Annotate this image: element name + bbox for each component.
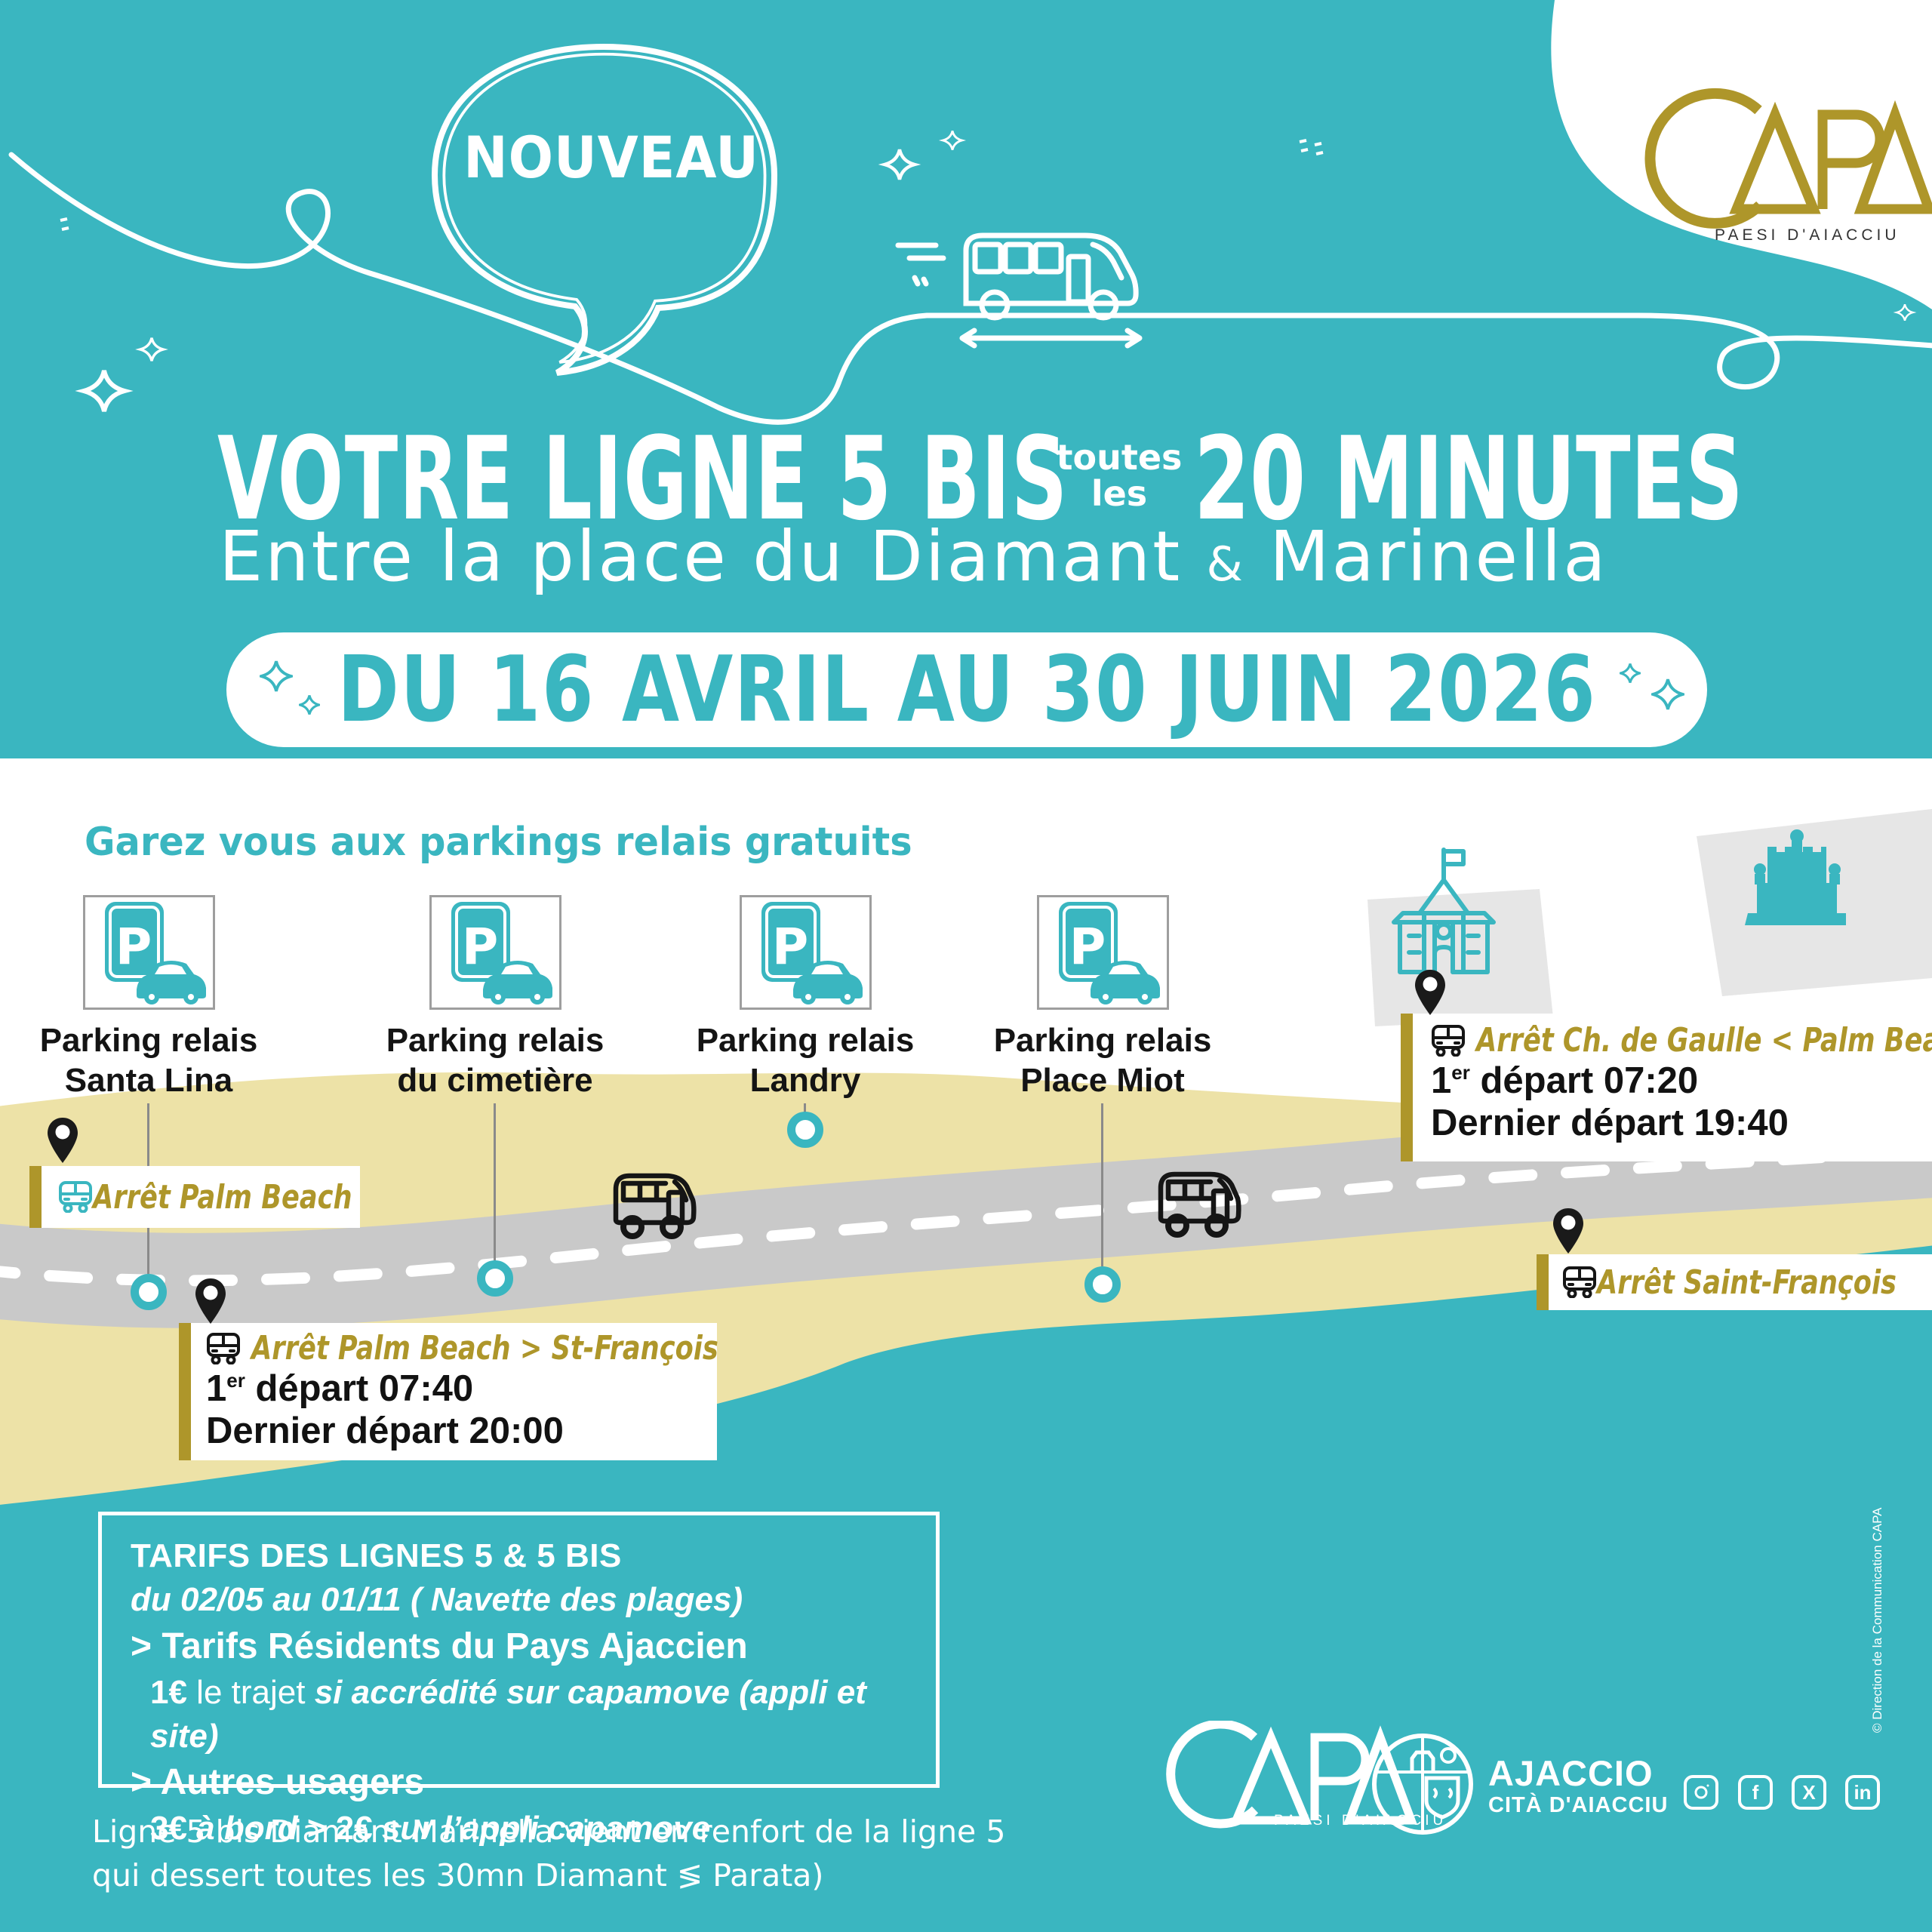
parking-icon: P: [85, 897, 213, 1008]
map-pin-icon: [47, 1117, 78, 1164]
instagram-icon[interactable]: [1684, 1775, 1718, 1810]
first-departure: 1er départ 07:20: [1431, 1060, 1932, 1102]
tarifs-resident-header: > Tarifs Résidents du Pays Ajaccien: [131, 1623, 936, 1671]
city-name: AJACCIO: [1488, 1752, 1654, 1794]
map-pin-icon: [195, 1278, 226, 1324]
tarifs-box: TARIFS DES LIGNES 5 & 5 BIS du 02/05 au …: [98, 1512, 940, 1788]
parking-icon: P: [432, 897, 559, 1008]
svg-text:P: P: [115, 918, 152, 976]
tarifs-subtitle: du 02/05 au 01/11 ( Navette des plages): [131, 1577, 936, 1623]
parking-label-landry: Parking relais Landry: [647, 1020, 964, 1100]
map-pin-icon: [1414, 969, 1446, 1016]
connector-line: [494, 1103, 496, 1260]
bus-icon: [610, 1156, 700, 1241]
stop-card-ch-de-gaulle: Arrêt Ch. de Gaulle < Palm Beach 1er dép…: [1401, 1014, 1932, 1161]
svg-text:P: P: [1069, 918, 1106, 976]
parking-card-cimetiere: P: [429, 895, 561, 1010]
stop-card-palm-beach: Arrêt Palm Beach: [29, 1166, 360, 1228]
stop-card-palm-beach-st-francois: Arrêt Palm Beach > St-François 1er dépar…: [179, 1323, 717, 1460]
connector-line: [1101, 1103, 1103, 1266]
parking-icon: P: [1039, 897, 1167, 1008]
parking-card-landry: P: [740, 895, 872, 1010]
stop-card-saint-francois: Arrêt Saint-François: [1537, 1254, 1932, 1310]
parking-label-cimetiere: Parking relais du cimetière: [337, 1020, 654, 1100]
city-subtitle: CITÀ D'AIACCIU: [1488, 1793, 1668, 1818]
stop-label: Arrêt Palm Beach: [93, 1178, 352, 1217]
tarifs-resident-line: 1€ le trajet si accrédité sur capamove (…: [131, 1671, 936, 1758]
stop-label: Arrêt Palm Beach > St-François: [251, 1329, 718, 1367]
bus-icon: [58, 1181, 93, 1213]
last-departure: Dernier départ 20:00: [206, 1410, 717, 1452]
parking-card-santa-lina: P: [83, 895, 215, 1010]
facebook-icon[interactable]: f: [1738, 1775, 1773, 1810]
route-point: [131, 1274, 167, 1310]
footnote: Ligne 5 bis Diamant Marinella vient en r…: [92, 1810, 1005, 1897]
tarifs-others-header: > Autres usagers: [131, 1758, 936, 1807]
instagram-glyph: [1690, 1782, 1712, 1803]
svg-text:P: P: [772, 918, 808, 976]
bus-icon: [1431, 1025, 1466, 1057]
svg-text:P: P: [462, 918, 498, 976]
route-point: [477, 1260, 513, 1297]
linkedin-icon[interactable]: in: [1845, 1775, 1880, 1810]
statue-icon: [1745, 826, 1850, 928]
map-pin-icon: [1552, 1207, 1584, 1254]
route-point: [787, 1112, 823, 1148]
poster: { "colors": { "teal": "#3AB6C0", "gold":…: [0, 0, 1932, 1932]
bus-icon: [1562, 1266, 1597, 1298]
stop-label: Arrêt Saint-François: [1597, 1263, 1897, 1302]
bus-icon: [1155, 1155, 1245, 1239]
route-point: [1084, 1266, 1121, 1303]
tarifs-title: TARIFS DES LIGNES 5 & 5 BIS: [131, 1535, 936, 1577]
first-departure: 1er départ 07:40: [206, 1367, 717, 1410]
ajaccio-crest-icon: [1371, 1731, 1475, 1837]
bus-icon: [206, 1333, 241, 1364]
x-twitter-icon[interactable]: X: [1792, 1775, 1826, 1810]
map-heading: Garez vous aux parkings relais gratuits: [85, 820, 912, 865]
copyright-credit: © Direction de la Communication CAPA: [1870, 1508, 1885, 1734]
parking-label-santa-lina: Parking relais Santa Lina: [0, 1020, 307, 1100]
parking-label-place-miot: Parking relais Place Miot: [944, 1020, 1261, 1100]
stop-label: Arrêt Ch. de Gaulle < Palm Beach: [1476, 1021, 1932, 1060]
parking-card-place-miot: P: [1037, 895, 1169, 1010]
school-icon: [1391, 844, 1504, 978]
last-departure: Dernier départ 19:40: [1431, 1102, 1932, 1144]
parking-icon: P: [742, 897, 869, 1008]
